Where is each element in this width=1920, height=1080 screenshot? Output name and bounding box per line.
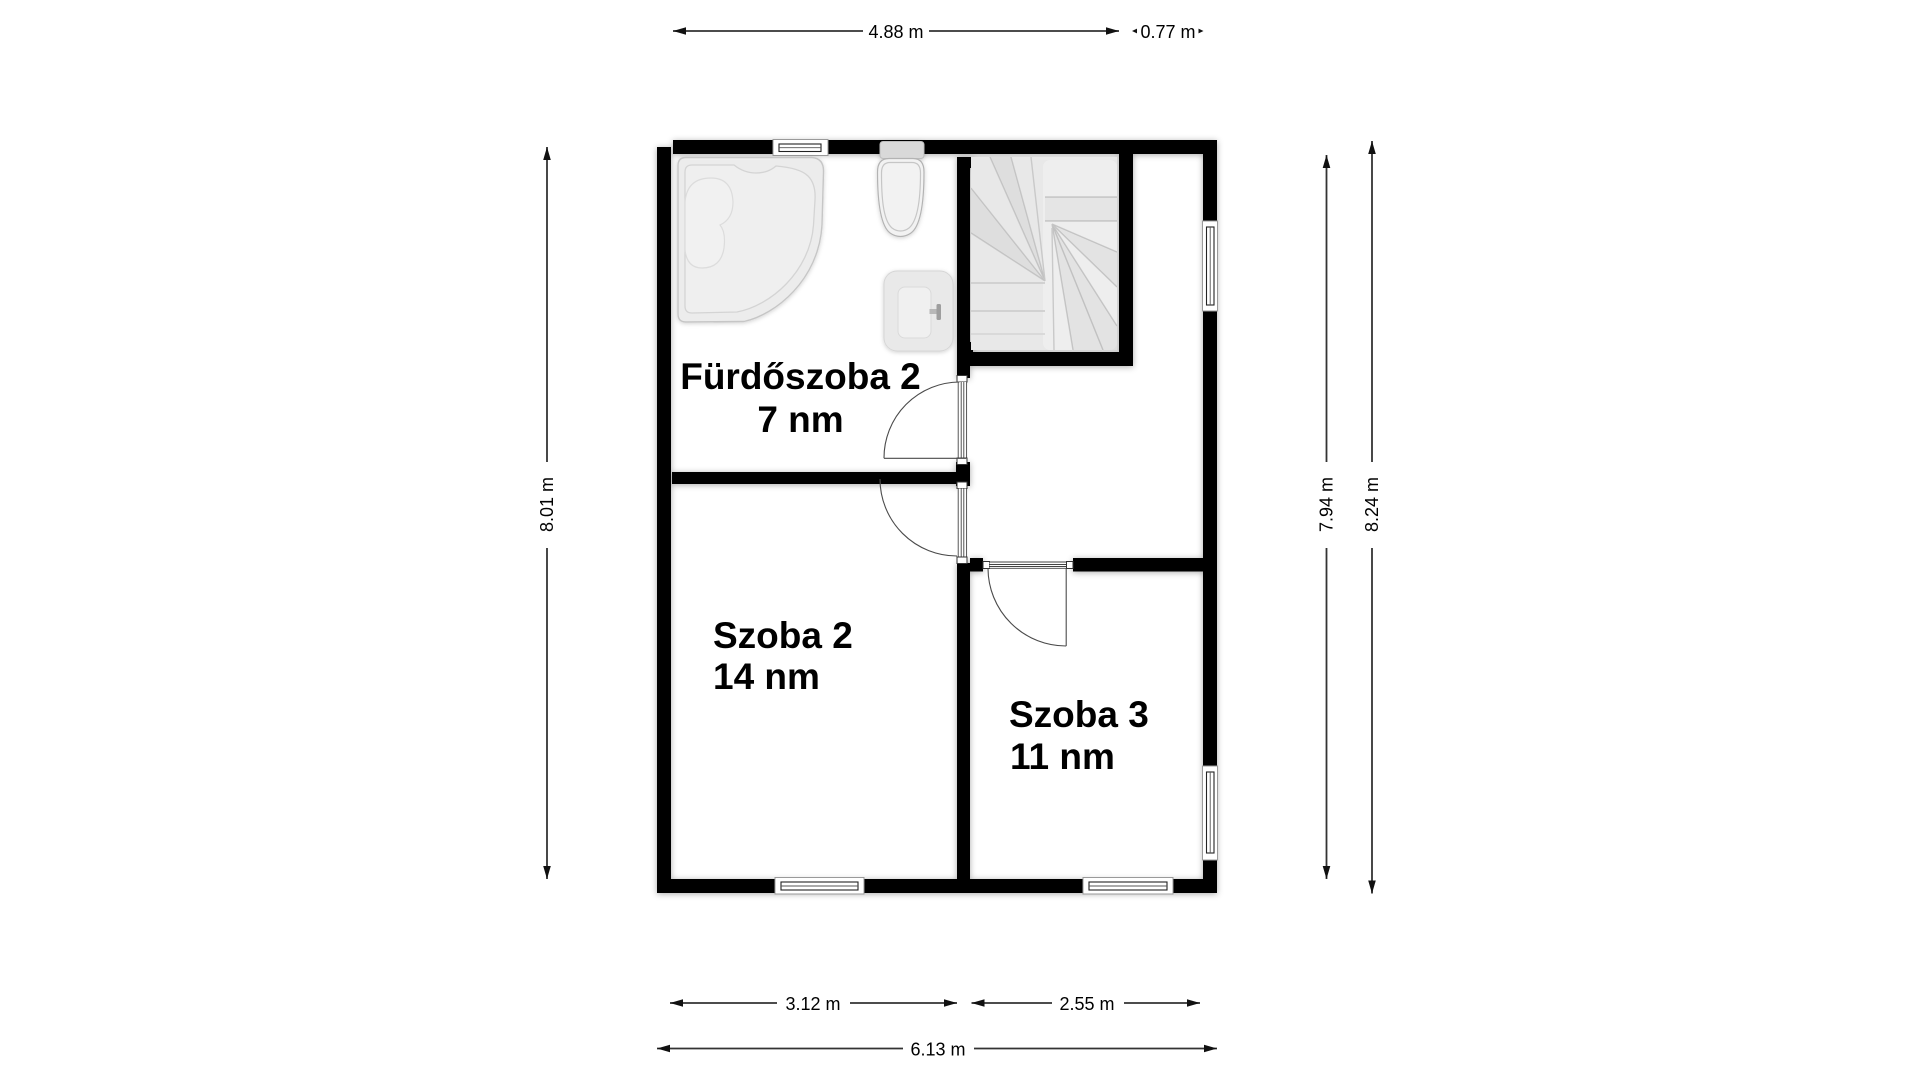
svg-text:7.94 m: 7.94 m bbox=[1317, 477, 1337, 532]
svg-text:Szoba 2: Szoba 2 bbox=[713, 615, 853, 656]
svg-text:14 nm: 14 nm bbox=[713, 656, 820, 697]
svg-text:11 nm: 11 nm bbox=[1010, 736, 1115, 777]
svg-text:8.01 m: 8.01 m bbox=[537, 477, 557, 532]
svg-text:7 nm: 7 nm bbox=[757, 399, 843, 440]
svg-text:8.24 m: 8.24 m bbox=[1362, 477, 1382, 532]
svg-text:0.77 m: 0.77 m bbox=[1140, 22, 1195, 42]
svg-text:3.12 m: 3.12 m bbox=[785, 994, 840, 1014]
svg-text:6.13 m: 6.13 m bbox=[910, 1040, 965, 1060]
svg-text:Fürdőszoba 2: Fürdőszoba 2 bbox=[680, 356, 921, 397]
svg-text:Szoba 3: Szoba 3 bbox=[1009, 694, 1149, 735]
svg-text:2.55 m: 2.55 m bbox=[1059, 994, 1114, 1014]
svg-text:4.88 m: 4.88 m bbox=[868, 22, 923, 42]
